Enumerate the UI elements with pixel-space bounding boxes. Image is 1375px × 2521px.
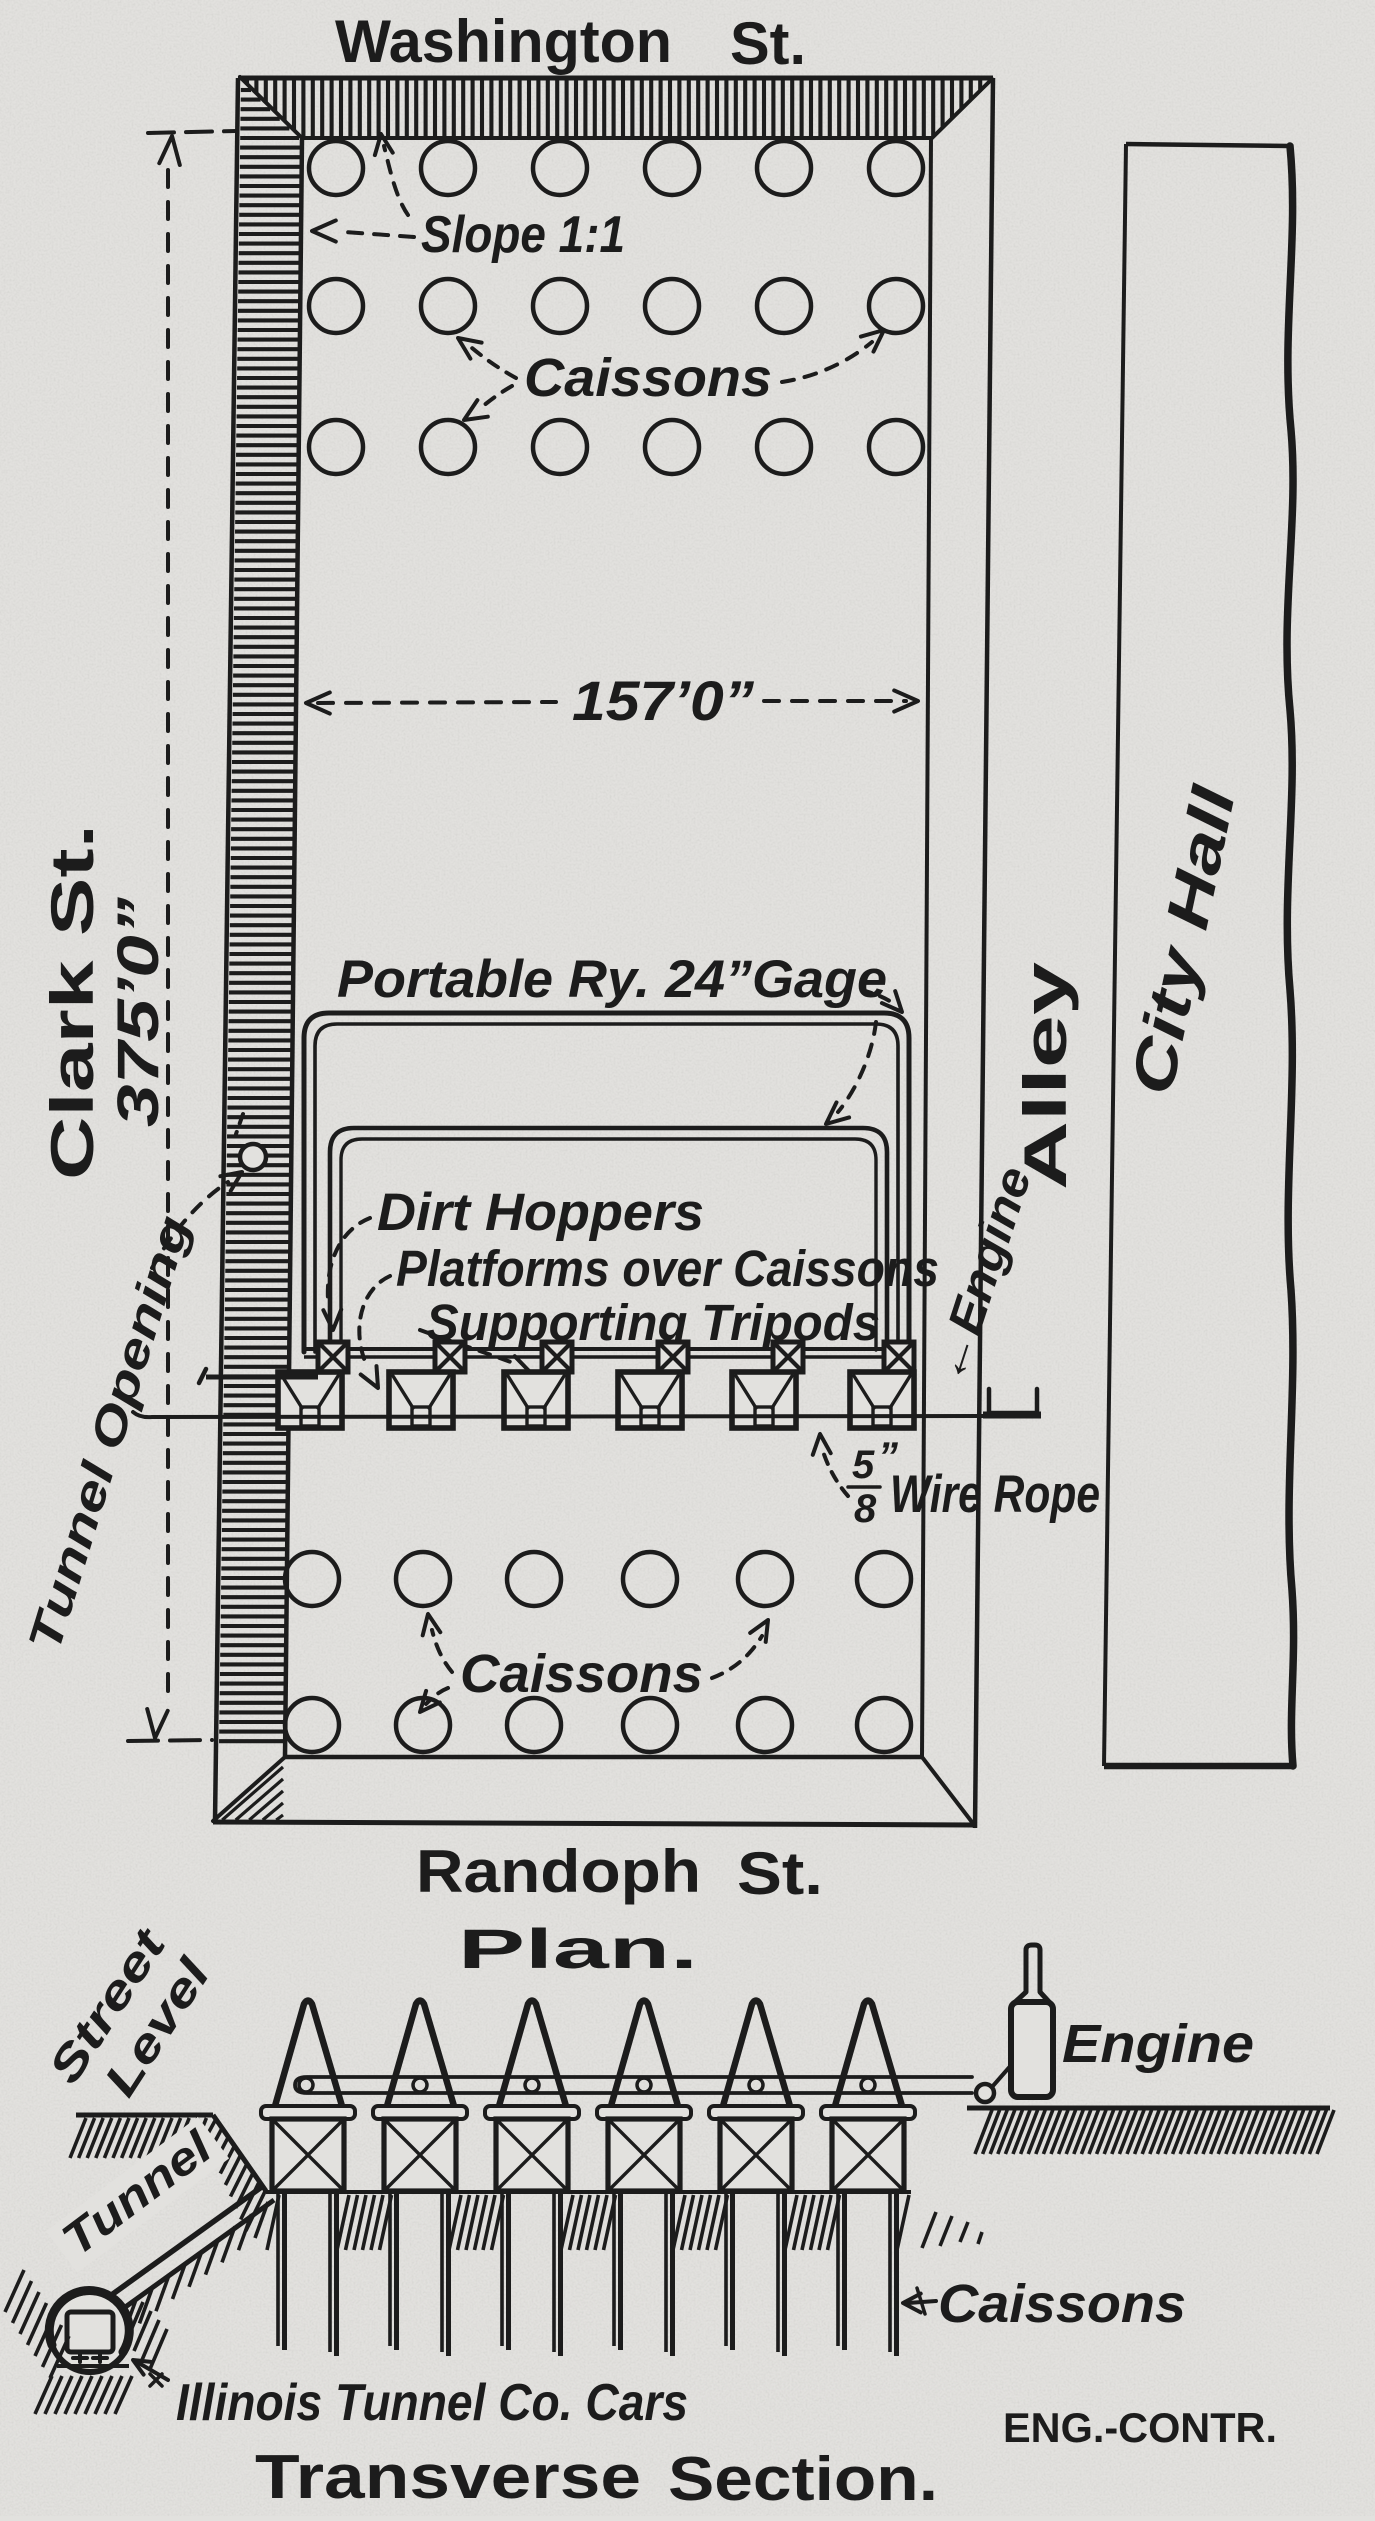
svg-text:ENG.-CONTR.: ENG.-CONTR. xyxy=(1003,2404,1277,2451)
svg-text:5: 5 xyxy=(852,1443,875,1487)
svg-text:8: 8 xyxy=(854,1487,877,1531)
svg-text:Transverse: Transverse xyxy=(255,2443,641,2512)
svg-text:St.: St. xyxy=(730,10,806,77)
svg-text:Engine: Engine xyxy=(1062,2014,1254,2074)
svg-text:Platforms over Caissons: Platforms over Caissons xyxy=(396,1240,939,1297)
svg-text:Portable Ry. 24”Gage: Portable Ry. 24”Gage xyxy=(337,950,887,1009)
svg-text:Randoph: Randoph xyxy=(416,1838,701,1905)
svg-text:Caissons: Caissons xyxy=(460,1644,703,1704)
svg-text:Alley: Alley xyxy=(1012,961,1079,1190)
svg-text:Dirt Hoppers: Dirt Hoppers xyxy=(377,1183,704,1242)
svg-text:Supporting Tripods: Supporting Tripods xyxy=(426,1294,880,1351)
svg-text:Section.: Section. xyxy=(668,2445,938,2514)
svg-text:Slope 1:1: Slope 1:1 xyxy=(421,206,625,264)
svg-text:375’0”: 375’0” xyxy=(106,897,171,1127)
svg-text:157’0”: 157’0” xyxy=(572,669,754,732)
svg-text:Washington: Washington xyxy=(335,8,672,75)
svg-text:Illinois Tunnel Co. Cars: Illinois Tunnel Co. Cars xyxy=(176,2374,688,2432)
svg-text:Clark St.: Clark St. xyxy=(39,824,106,1180)
svg-text:Plan.: Plan. xyxy=(458,1917,698,1980)
svg-text:St.: St. xyxy=(737,1840,823,1907)
svg-text:Wire Rope: Wire Rope xyxy=(890,1465,1100,1524)
svg-text:Caissons: Caissons xyxy=(938,2274,1186,2334)
svg-text:Caissons: Caissons xyxy=(524,348,772,408)
